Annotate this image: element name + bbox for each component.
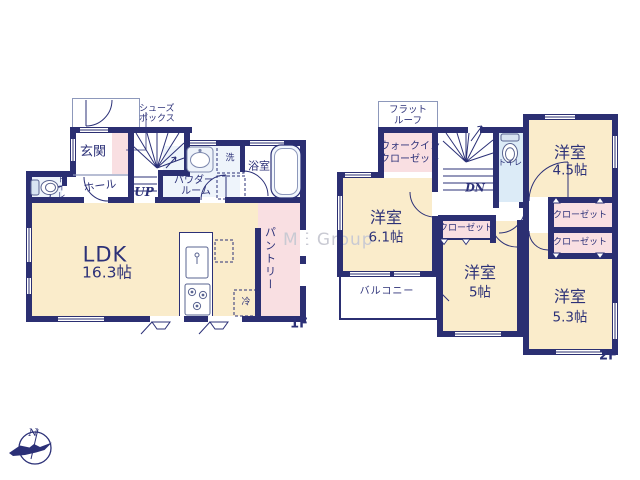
wall bbox=[493, 127, 499, 208]
window bbox=[70, 139, 76, 161]
room-45-label: 洋室 bbox=[554, 145, 586, 161]
powder-room-label-line2: ルーム bbox=[181, 187, 211, 197]
window bbox=[350, 271, 390, 277]
balcony-box bbox=[339, 277, 438, 320]
room-5-label: 洋室 bbox=[464, 265, 496, 281]
room-53-label: 洋室 bbox=[554, 289, 586, 305]
wall bbox=[108, 197, 133, 203]
wall bbox=[548, 197, 612, 203]
ldk-size-label: 16.3帖 bbox=[82, 265, 132, 281]
powder-room-label-line1: パウダー bbox=[174, 176, 214, 186]
wall bbox=[26, 171, 75, 177]
room-5-size: 5帖 bbox=[469, 286, 491, 300]
closet-53-label: クローゼット bbox=[553, 239, 607, 248]
fridge-label: 冷 bbox=[241, 299, 250, 308]
window bbox=[612, 303, 618, 339]
window bbox=[556, 349, 602, 355]
wall bbox=[548, 253, 618, 259]
watermark: ME Group bbox=[283, 230, 374, 250]
closet-front-line bbox=[437, 238, 493, 240]
bathroom-label: 浴室 bbox=[248, 161, 270, 172]
window bbox=[80, 127, 108, 133]
window bbox=[190, 140, 216, 146]
window bbox=[455, 331, 501, 337]
wall bbox=[240, 140, 245, 172]
wic-label-line1: ウォークイン bbox=[380, 142, 440, 152]
wall bbox=[437, 215, 495, 221]
pantry-shelf-opening bbox=[300, 264, 306, 286]
entrance-porch bbox=[72, 98, 140, 128]
window bbox=[345, 172, 371, 178]
door-opening bbox=[499, 202, 519, 208]
closet-5-label: クローゼット bbox=[439, 225, 493, 234]
shoes-box-label-line1: シューズ bbox=[139, 105, 175, 114]
flat-roof-label-line1: フラット bbox=[389, 105, 427, 115]
genkan-label: 玄関 bbox=[80, 146, 106, 159]
stairs-down-icon bbox=[443, 126, 493, 190]
balcony-label: バルコニー bbox=[360, 287, 415, 297]
window bbox=[250, 140, 284, 146]
wall bbox=[523, 114, 529, 355]
room-45-size: 4.5帖 bbox=[553, 164, 588, 178]
wall bbox=[26, 197, 84, 203]
room-61-size: 6.1帖 bbox=[369, 231, 404, 245]
room-61-label: 洋室 bbox=[370, 210, 402, 226]
kitchen-island bbox=[179, 232, 213, 318]
hall-label: ホール bbox=[83, 178, 117, 193]
wall bbox=[155, 197, 200, 203]
wall bbox=[158, 170, 163, 197]
window bbox=[26, 278, 32, 294]
shoes-box-area bbox=[112, 133, 128, 174]
window bbox=[545, 114, 575, 120]
closet-45-label: クローゼット bbox=[553, 212, 607, 221]
laundry-label: 洗 bbox=[225, 155, 234, 164]
compass-north-label: N bbox=[27, 427, 38, 439]
window bbox=[612, 136, 618, 168]
pantry-shelf-opening bbox=[300, 230, 306, 256]
sliding-door-opening bbox=[208, 316, 242, 322]
wall bbox=[255, 228, 261, 317]
pantry-label: パントリー bbox=[265, 227, 276, 292]
shoes-box-label-line2: ボックス bbox=[139, 115, 175, 124]
wall bbox=[517, 220, 523, 337]
floor1-label: 1F bbox=[290, 318, 308, 331]
sliding-door-opening bbox=[150, 316, 184, 322]
wall bbox=[548, 227, 618, 233]
wall bbox=[184, 127, 190, 176]
wall bbox=[128, 127, 134, 203]
toilet-1f-label: トイレ bbox=[57, 175, 65, 199]
toilet-2f-label: トイレ bbox=[498, 159, 522, 167]
wall bbox=[378, 127, 384, 178]
stairs-up-label: UP bbox=[134, 186, 154, 198]
floor2-label: 2F bbox=[599, 350, 617, 363]
wic-floor bbox=[384, 133, 432, 172]
window bbox=[58, 316, 104, 322]
floorplan-page: ME Group bbox=[0, 0, 640, 480]
door-opening bbox=[432, 192, 438, 216]
wall bbox=[225, 197, 306, 203]
stair-arrow-opening bbox=[468, 127, 480, 133]
window bbox=[337, 196, 343, 230]
bathtub-icon bbox=[271, 145, 301, 198]
compass-icon: N bbox=[9, 427, 52, 464]
window bbox=[394, 271, 420, 277]
flat-roof-label-line2: ルーフ bbox=[394, 116, 422, 126]
window bbox=[26, 228, 32, 262]
stairs-down-label: DN bbox=[465, 183, 485, 194]
wic-label-line2: クローゼット bbox=[380, 155, 440, 165]
room-53-size: 5.3帖 bbox=[553, 311, 588, 325]
toilet-2f-floor bbox=[499, 133, 523, 202]
